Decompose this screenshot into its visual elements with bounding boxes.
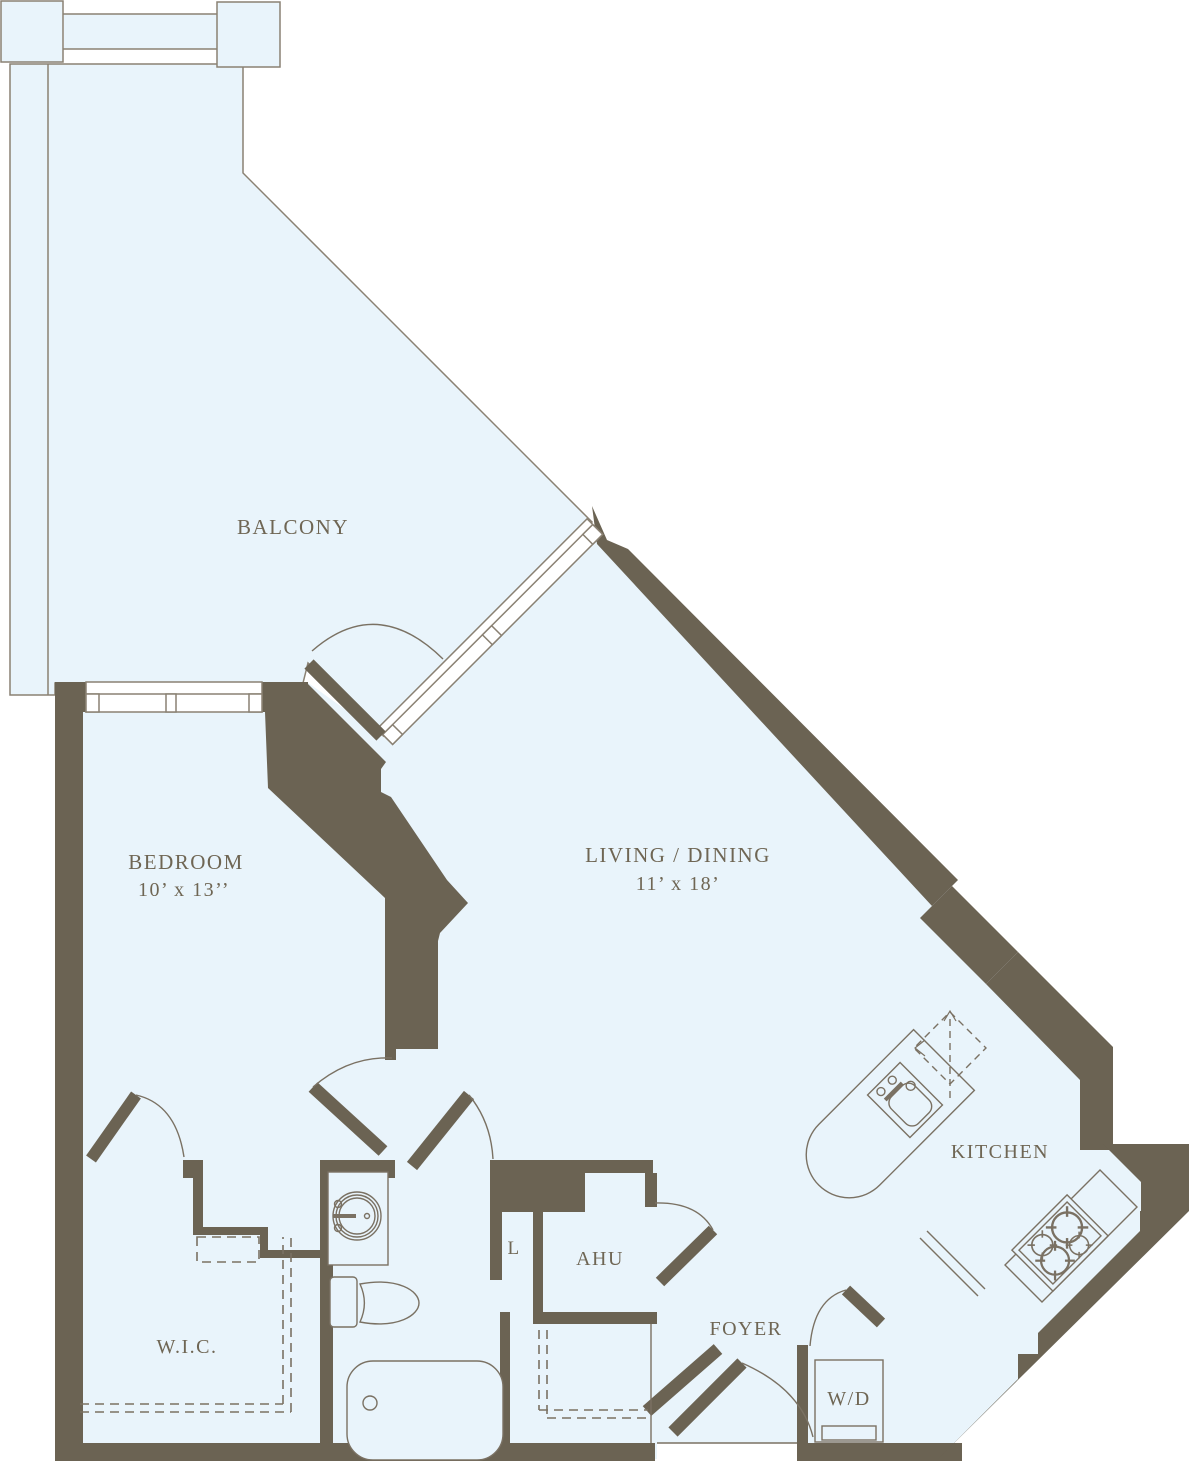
floor-plan: BALCONY BEDROOM 10’ x 13’’ LIVING / DINI… <box>0 0 1191 1461</box>
bedroom-window <box>86 682 262 712</box>
wd-label: W/D <box>827 1388 870 1410</box>
wall-wic-step-v <box>193 1160 203 1235</box>
wall-ahu-right-stub <box>645 1173 657 1207</box>
balcony-label: BALCONY <box>237 515 349 539</box>
linen-closet-label: L <box>507 1238 520 1259</box>
wall-hall-top <box>490 1160 653 1173</box>
entry-gap <box>657 1443 797 1461</box>
floor-plan-canvas: BALCONY BEDROOM 10’ x 13’’ LIVING / DINI… <box>0 0 1191 1461</box>
wall-kitchen-right <box>1080 1047 1113 1150</box>
ahu-label: AHU <box>576 1248 624 1270</box>
entry-opening <box>657 1443 797 1461</box>
wall-bottom-right <box>797 1443 962 1461</box>
balcony-post-right <box>217 2 280 67</box>
kitchen-label: KITCHEN <box>951 1141 1049 1163</box>
bedroom-dims: 10’ x 13’’ <box>138 879 230 901</box>
wall-ahu-bottom <box>533 1312 657 1324</box>
wall-linen-block <box>498 1172 585 1212</box>
wall-wic-step-h <box>193 1227 268 1235</box>
bathroom-vanity <box>328 1172 388 1265</box>
living-dining-label: LIVING / DINING <box>585 843 771 867</box>
bedroom-label: BEDROOM <box>128 850 244 874</box>
living-dining-dims: 11’ x 18’ <box>636 873 721 895</box>
balcony-rail <box>64 14 217 49</box>
wall-left <box>55 682 83 1459</box>
wall-wd-left <box>797 1345 808 1443</box>
foyer-label: FOYER <box>709 1318 782 1340</box>
wall-bedroom-top-left <box>55 682 86 712</box>
wall-wic-step-h2 <box>260 1250 320 1258</box>
wall-linen-ahu-divider <box>533 1212 543 1312</box>
bathtub-icon <box>347 1361 503 1460</box>
wic-label: W.I.C. <box>156 1336 217 1358</box>
balcony-post-left <box>1 1 63 62</box>
